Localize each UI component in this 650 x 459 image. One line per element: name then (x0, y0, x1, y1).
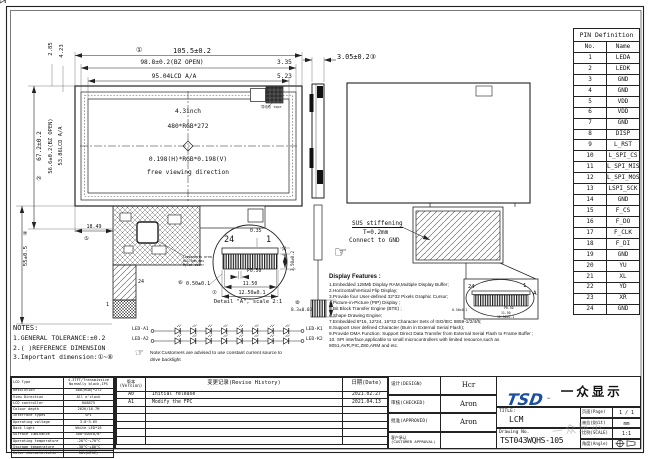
revision-history (146, 437, 343, 445)
revision-history (146, 421, 343, 429)
datasheet-page: 4.3inch 480*RGB*272 0.198(H)*RGB*0.198(V… (0, 0, 650, 459)
pin-row: 9L_RST (574, 140, 640, 151)
note-hand-icon: ☞ (135, 349, 144, 360)
pin-number: 16 (574, 217, 607, 228)
display-features: Display Features : 1.Embedded 128Mb Disp… (329, 274, 543, 349)
pin-name: GND (607, 74, 640, 85)
pin-name: XR (607, 293, 640, 304)
dim-bz-width: 98.8±0.2(BZ OPEN) (140, 60, 203, 67)
angle-label: 角度(Angle) (581, 440, 612, 447)
pin-row: 24GND (574, 304, 640, 315)
revision-col-date: 日期(Date) (343, 378, 391, 392)
pin-number: 21 (574, 271, 607, 282)
detail-caption: Detail "A", scale 2:1 (214, 300, 282, 306)
design-label: 设计(DESIGN) (389, 377, 440, 387)
detail-a (209, 225, 296, 299)
revision-table: 版本 (Version) 变更记录(Revise History) 日期(Dat… (115, 376, 388, 449)
pin-col-name: Name (607, 42, 640, 53)
dim-aa-width: 95.04LCD A/A (152, 74, 197, 81)
revision-version: A0 (117, 391, 146, 399)
revision-history (146, 429, 343, 437)
approved-label: 批准(APPROVED) (389, 414, 440, 424)
note-item: 1.GENERAL TOLERANCE:±0.2 (13, 334, 123, 344)
led-a1-label: LED-A1 (132, 328, 149, 333)
spec-value: 50%(NTSC) (64, 451, 114, 457)
panel-viewing-label: free viewing direction (147, 170, 229, 177)
detail-dim-350: 3.50±0.2 (291, 251, 295, 271)
pin-row: 22YD (574, 282, 640, 293)
pin-number: 11 (574, 162, 607, 173)
revision-date (343, 429, 391, 437)
revision-row: A0Initial release2021.02.27 (117, 391, 391, 399)
pin-row: 8DISP (574, 129, 640, 140)
pin-number: 6 (574, 107, 607, 118)
pin-row: 7GND (574, 118, 640, 129)
pin-name: L_SPI_MOSI (607, 173, 640, 184)
pin-number: 18 (574, 238, 607, 249)
notes-title: NOTES: (13, 324, 123, 332)
revision-row (117, 406, 391, 414)
revision-row (117, 414, 391, 422)
fpc-pin24-label: 24 (138, 280, 144, 285)
pin-row: 19GND (574, 249, 640, 260)
pointing-hand-icon: ☞ (334, 245, 347, 261)
detail-mark-6: ⑥ (178, 281, 183, 287)
revision-row (117, 429, 391, 437)
dim-connector-length: 8.3±0.03 (291, 309, 312, 314)
pin-name: F_CLK (607, 227, 640, 238)
dim-top-left-2: 4.23 (60, 44, 66, 57)
pin-name: L_SPI_MISO (607, 162, 640, 173)
pin-name: F_DO (607, 217, 640, 228)
pin-table-header-row: No. Name (574, 42, 640, 53)
dim-right-1: 3.35 (277, 60, 292, 67)
approved-value: Aron (441, 414, 496, 426)
led-k2-label: LED-K2 (306, 338, 323, 343)
pin-number: 10 (574, 151, 607, 162)
dim-fpc-length: 55±0.5 (24, 246, 30, 266)
detail-dim-020: 0.20 (283, 246, 287, 256)
revision-col-version: 版本 (Version) (117, 378, 146, 392)
revision-history (146, 414, 343, 422)
revision-row (117, 421, 391, 429)
pin-name: YD (607, 282, 640, 293)
spec-value: 4.3TFT/Transmissive Normally black,IPS (64, 378, 114, 389)
backlight-note-line2: drive backlight (150, 358, 181, 363)
dim-fpc-offset: 18.49 (86, 225, 101, 230)
note-item: 2.( )REFERENCE DIMENSION (13, 344, 123, 354)
pin-number: 1 (574, 52, 607, 63)
pin-row: 10L_SPI_CS (574, 151, 640, 162)
revision-version (117, 421, 146, 429)
revision-date (343, 421, 391, 429)
pin-number: 8 (574, 129, 607, 140)
pin-row: 1LEDA (574, 52, 640, 63)
revision-col-history: 变更记录(Revise History) (146, 378, 343, 392)
pin-row: 13LSPI_SCK (574, 184, 640, 195)
display-features-title: Display Features : (329, 274, 543, 280)
customer-approval-label: 客户承认 (CUSTOMER APPROVAL) (389, 433, 440, 445)
pin-name: GND (607, 304, 640, 315)
pin-name: GND (607, 118, 640, 129)
checked-value: Aron (441, 396, 496, 408)
dim-thickness: 3.05±0.2③ (337, 54, 376, 61)
checked-label: 审核(CHECKED) (389, 396, 440, 406)
pin-name: LEDA (607, 52, 640, 63)
dim-top-left-1: 2.85 (49, 42, 55, 55)
fpc-pin1-label: 1 (106, 303, 109, 308)
dim-mark-4: ④ (24, 230, 30, 235)
dimension-lines (16, 52, 336, 324)
pin-row: 3GND (574, 74, 640, 85)
components-area-label-3: Mylar cover (183, 264, 204, 267)
page-label: 页面(Page) (581, 408, 612, 415)
revision-version (117, 437, 146, 445)
dim-total-height: 67.2±0.2 (37, 131, 44, 161)
pin-number: 20 (574, 260, 607, 271)
scale-value: 1:1 (613, 429, 640, 437)
pin-number: 12 (574, 173, 607, 184)
pin-row: 20YU (574, 260, 640, 271)
revision-date: 2021.02.27 (343, 391, 391, 399)
revision-row: A1Modify the FPC2021.04.13 (117, 399, 391, 407)
pin-number: 17 (574, 227, 607, 238)
pin-row: 21XL (574, 271, 640, 282)
panel-dot-pitch-label: 0.198(H)*RGB*0.198(V) (149, 157, 227, 164)
pin-col-no: No. (574, 42, 607, 53)
logo-tsd-icon: TSD (506, 392, 545, 408)
pin-name: VDD (607, 96, 640, 107)
revision-history: Initial release (146, 391, 343, 399)
pin-row: 2LEDK (574, 63, 640, 74)
dim-bz-height: 56.6±0.2(BZ OPEN) (49, 118, 55, 173)
revision-version (117, 429, 146, 437)
detail-pin1: 1 (266, 236, 271, 245)
notes-list: 1.GENERAL TOLERANCE:±0.22.( )REFERENCE D… (13, 334, 123, 363)
pin-name: L_RST (607, 140, 640, 151)
display-features-list: 1.Embedded 128Mb Display RAM,Multiple Di… (329, 282, 543, 349)
pin-row: 11L_SPI_MISO (574, 162, 640, 173)
angle-symbol-cell (612, 439, 641, 450)
dim-total-width: 105.5±0.2 (173, 48, 211, 55)
detail-mark-7: ⑦ (212, 291, 217, 297)
pin-number: 23 (574, 293, 607, 304)
pin-row: 4GND (574, 85, 640, 96)
pin-name: F_CS (607, 206, 640, 217)
revision-row (117, 437, 391, 445)
unit-label: 单位(Unit) (581, 419, 612, 426)
dim-mark-8: ⑧ (295, 301, 300, 307)
sus-label-2: T=0.2mm (363, 230, 388, 236)
detail-dim-p050: P0.50 (247, 269, 261, 274)
led-k1-label: LED-K1 (306, 328, 323, 333)
logo-trademark: ™ (547, 398, 550, 403)
pin-table-title-row: PIN Definition (574, 29, 640, 42)
sus-label-3: Connect to GND (349, 238, 400, 244)
pin-row: 15F_CS (574, 206, 640, 217)
spec-table: LCD Type4.3TFT/Transmissive Normally bla… (10, 376, 115, 449)
revision-date (343, 414, 391, 422)
revision-date (343, 406, 391, 414)
company-logo: TSD ™ 一众显示 TEAM SOURCE DISPLAY (496, 376, 641, 407)
revision-date: 2021.04.13 (343, 399, 391, 407)
detail-dim-035: 0.35 (250, 229, 262, 234)
notes-block: NOTES: 1.GENERAL TOLERANCE:±0.22.( )REFE… (13, 324, 123, 363)
pin-row: 5VDD (574, 96, 640, 107)
pin-name: DISP (607, 129, 640, 140)
pin-name: F_DI (607, 238, 640, 249)
pin-number: 2 (574, 63, 607, 74)
spec-row: Color characteristic50%(NTSC) (12, 451, 114, 457)
dim-mark-2: ② (37, 175, 44, 181)
pin-name: VDD (607, 107, 640, 118)
tape-label: 导电布 tape (261, 106, 281, 110)
pin-number: 14 (574, 195, 607, 206)
dim-aa-height: 53.86LCD A/A (59, 127, 65, 166)
page-value: 1 / 1 (613, 408, 640, 416)
revision-version: A1 (117, 399, 146, 407)
revision-history (146, 406, 343, 414)
detail-dim-050: 0.50±0.1 (186, 282, 210, 287)
side-view (310, 84, 327, 317)
pin-name: LEDK (607, 63, 640, 74)
sus-label-1: SUS stiffening (352, 221, 403, 228)
note-item: 3.Important dimension:①~⑧ (13, 353, 123, 363)
dim-mark-1: ① (136, 47, 142, 54)
spec-row: LCD Type4.3TFT/Transmissive Normally bla… (12, 378, 114, 389)
pin-name: GND (607, 85, 640, 96)
design-value: Hcr (441, 377, 496, 389)
pin-number: 15 (574, 206, 607, 217)
unit-value: mm (613, 419, 640, 427)
pin-row: 23XR (574, 293, 640, 304)
pin-name: L_SPI_CS (607, 151, 640, 162)
pin-row: 17F_CLK (574, 227, 640, 238)
panel-resolution-label: 480*RGB*272 (168, 124, 209, 131)
pin-number: 13 (574, 184, 607, 195)
detail-pin24: 24 (224, 236, 234, 245)
revision-header-row: 版本 (Version) 变更记录(Revise History) 日期(Dat… (117, 378, 391, 392)
led-a2-label: LED-A2 (132, 338, 149, 343)
panel-size-label: 4.3inch (175, 109, 201, 116)
pin-number: 19 (574, 249, 607, 260)
pin-row: 16F_DO (574, 217, 640, 228)
pin-number: 7 (574, 118, 607, 129)
scale-label: 比例(SCALE) (581, 429, 612, 436)
pin-table-title: PIN Definition (574, 29, 640, 42)
pin-row: 6VDD (574, 107, 640, 118)
pin-definition-table: PIN Definition No. Name 1LEDA2LEDK3GND4G… (573, 28, 640, 315)
front-view (75, 86, 302, 206)
pin-number: 24 (574, 304, 607, 315)
revision-history: Modify the FPC (146, 399, 343, 407)
spec-label: Color characteristic (12, 451, 64, 457)
detail-dim-1150: 11.50 (243, 282, 257, 287)
dim-right-2: 5.23 (277, 74, 292, 81)
pin-row: 14GND (574, 195, 640, 206)
title-value: LCM (497, 414, 580, 424)
revision-date (343, 437, 391, 445)
pin-name: GND (607, 195, 640, 206)
spec-label: LCD Type (12, 378, 64, 389)
revision-version (117, 406, 146, 414)
pin-name: GND (607, 249, 640, 260)
pin-name: XL (607, 271, 640, 282)
pin-number: 3 (574, 74, 607, 85)
drawing-no-value: TST043WQHS-105 (497, 435, 580, 445)
pin-name: LSPI_SCK (607, 184, 640, 195)
pin-number: 22 (574, 282, 607, 293)
detail-dim-1250: 12.50±0.1 (238, 291, 265, 296)
pin-row: 18F_DI (574, 238, 640, 249)
feature-item: 10. SPI interface,applicable to small mi… (329, 337, 543, 349)
pin-number: 5 (574, 96, 607, 107)
revision-version (117, 414, 146, 422)
logo-chinese-name: 一众显示 (561, 384, 623, 399)
pin-name: YU (607, 260, 640, 271)
pin-number: 9 (574, 140, 607, 151)
pin-row: 12L_SPI_MOSI (574, 173, 640, 184)
pin-number: 4 (574, 85, 607, 96)
backlight-note-line1: Note:Customers are advised to use consta… (150, 351, 282, 356)
dim-mark-5: ⑤ (84, 237, 89, 243)
